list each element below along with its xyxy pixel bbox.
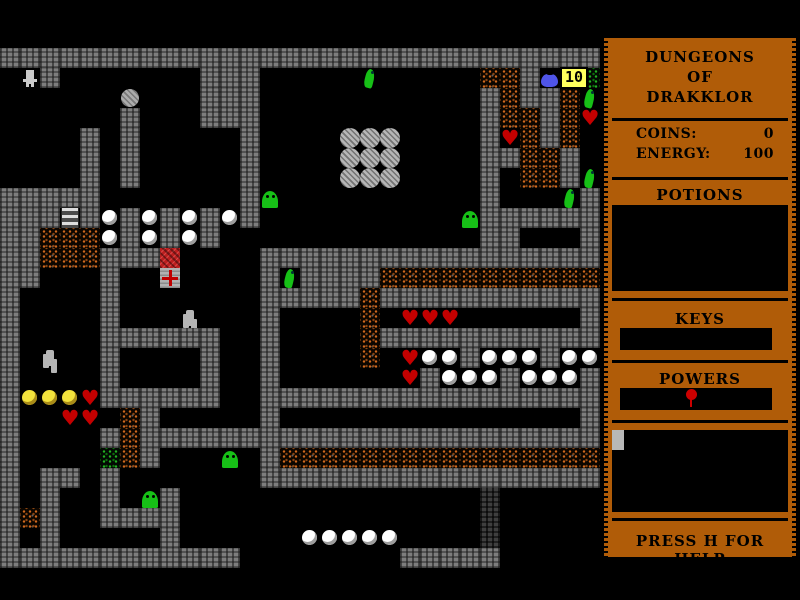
wall-tile [380, 428, 400, 448]
wall-tile [200, 48, 220, 68]
wall-tile [460, 388, 480, 408]
wall-tile [100, 248, 120, 268]
stone-orb [360, 128, 380, 148]
wall-tile [420, 288, 440, 308]
gold-ball-item [40, 388, 60, 408]
wall-tile [560, 48, 580, 68]
dirt-tile [520, 148, 540, 168]
wall-tile [380, 48, 400, 68]
wall-tile [0, 248, 20, 268]
wall-tile [100, 428, 120, 448]
wall-tile [300, 268, 320, 288]
pearl-item [560, 368, 580, 388]
wall-tile [400, 328, 420, 348]
wall-tile [380, 388, 400, 408]
wall-tile [40, 548, 60, 568]
wall-tile [140, 248, 160, 268]
red-block [160, 248, 180, 268]
wall-tile [440, 468, 460, 488]
wall-tile [220, 108, 240, 128]
wall-tile [360, 428, 380, 448]
wall-tile [40, 488, 60, 508]
heart-item [80, 408, 100, 428]
wall-tile [260, 428, 280, 448]
wall-tile [340, 388, 360, 408]
wall-tile [560, 468, 580, 488]
dark-wall-tile [480, 508, 500, 528]
wall-tile [540, 288, 560, 308]
dirt-tile [120, 448, 140, 468]
wall-tile [60, 468, 80, 488]
wall-tile [280, 48, 300, 68]
wall-tile [140, 508, 160, 528]
wall-tile [500, 148, 520, 168]
wall-tile [420, 368, 440, 388]
wall-tile [500, 288, 520, 308]
wall-tile [500, 388, 520, 408]
divider [612, 420, 788, 423]
arrows-tile [160, 268, 180, 288]
wall-tile [340, 468, 360, 488]
wall-tile [20, 48, 40, 68]
wall-tile [520, 468, 540, 488]
wall-tile [580, 428, 600, 448]
wall-tile [160, 388, 180, 408]
help-text: PRESS H FOR HELP [608, 532, 792, 568]
wall-tile [520, 88, 540, 108]
wall-tile [240, 48, 260, 68]
dirt-tile [60, 248, 80, 268]
wall-tile [20, 268, 40, 288]
wall-tile [160, 488, 180, 508]
wall-tile [260, 468, 280, 488]
wall-tile [260, 328, 280, 348]
wall-tile [580, 468, 600, 488]
wall-tile [380, 248, 400, 268]
wall-tile [0, 348, 20, 368]
coins-row: COINS: 0 [636, 126, 774, 142]
wall-tile [240, 188, 260, 208]
wall-tile [240, 108, 260, 128]
dirt-tile [520, 448, 540, 468]
wall-tile [300, 288, 320, 308]
wall-tile [500, 208, 520, 228]
wall-tile [80, 48, 100, 68]
pearl-item [300, 528, 320, 548]
wall-tile [340, 268, 360, 288]
wall-tile [260, 368, 280, 388]
dirt-tile [580, 268, 600, 288]
wall-tile [440, 328, 460, 348]
wall-tile [440, 548, 460, 568]
dirt-tile [560, 448, 580, 468]
dirt-tile [460, 268, 480, 288]
wall-tile [480, 148, 500, 168]
wall-tile [100, 308, 120, 328]
wall-tile [100, 368, 120, 388]
dirt-tile [360, 328, 380, 348]
wall-tile [100, 348, 120, 368]
pearl-item [480, 348, 500, 368]
ammo-counter: 10 [560, 67, 588, 89]
divider [612, 177, 788, 180]
divider [612, 118, 788, 121]
potions-heading: POTIONS [608, 186, 792, 204]
pearl-item [180, 208, 200, 228]
wall-tile [540, 328, 560, 348]
dark-wall-tile [480, 488, 500, 508]
dungeon-map[interactable]: 10 [0, 48, 600, 568]
wall-tile [540, 388, 560, 408]
wall-tile [200, 548, 220, 568]
wall-tile [500, 328, 520, 348]
wall-tile [80, 548, 100, 568]
wall-tile [580, 308, 600, 328]
keys-box [620, 328, 772, 350]
wall-tile [320, 248, 340, 268]
potion-jug [540, 68, 560, 88]
wall-tile [20, 228, 40, 248]
wall-tile [260, 388, 280, 408]
dirt-tile [520, 108, 540, 128]
wall-tile [560, 388, 580, 408]
dirt-tile [80, 228, 100, 248]
wall-tile [300, 48, 320, 68]
pearl-item [440, 368, 460, 388]
wall-tile [240, 88, 260, 108]
wall-tile [0, 408, 20, 428]
snake-monster [580, 168, 600, 188]
wall-tile [540, 108, 560, 128]
wall-tile [240, 128, 260, 148]
divider [612, 298, 788, 301]
wall-tile [280, 288, 300, 308]
pearl-item [220, 208, 240, 228]
wall-tile [120, 128, 140, 148]
wall-tile [500, 228, 520, 248]
wall-tile [560, 288, 580, 308]
wall-tile [40, 48, 60, 68]
wall-tile [100, 388, 120, 408]
wall-tile [540, 48, 560, 68]
wall-tile [240, 68, 260, 88]
wall-tile [400, 388, 420, 408]
wall-tile [440, 48, 460, 68]
wall-tile [0, 268, 20, 288]
wall-tile [0, 388, 20, 408]
wall-tile [480, 288, 500, 308]
wall-tile [420, 428, 440, 448]
wall-tile [200, 88, 220, 108]
wall-tile [20, 188, 40, 208]
pearl-item [100, 208, 120, 228]
slime-monster [220, 448, 240, 468]
wall-tile [480, 128, 500, 148]
wall-tile [220, 68, 240, 88]
wall-tile [440, 388, 460, 408]
wall-tile [480, 428, 500, 448]
pearl-item [520, 348, 540, 368]
wall-tile [280, 248, 300, 268]
slime-monster [140, 488, 160, 508]
dirt-tile [560, 88, 580, 108]
wall-tile [460, 468, 480, 488]
wall-tile [80, 188, 100, 208]
wall-tile [560, 168, 580, 188]
stone-orb [360, 148, 380, 168]
wall-tile [500, 248, 520, 268]
wall-tile [160, 228, 180, 248]
wall-tile [0, 288, 20, 308]
wall-tile [400, 548, 420, 568]
heart-item [440, 308, 460, 328]
dirt-tile [400, 448, 420, 468]
wall-tile [440, 248, 460, 268]
wall-tile [480, 88, 500, 108]
wall-tile [220, 548, 240, 568]
wall-tile [160, 208, 180, 228]
wall-tile [0, 508, 20, 528]
wall-tile [560, 208, 580, 228]
wall-tile [120, 328, 140, 348]
wall-tile [560, 328, 580, 348]
wall-tile [100, 288, 120, 308]
wall-tile [140, 548, 160, 568]
wall-tile [320, 388, 340, 408]
wall-tile [460, 548, 480, 568]
dirt-tile [500, 448, 520, 468]
wall-tile [500, 468, 520, 488]
wall-tile [300, 468, 320, 488]
wall-tile [200, 428, 220, 448]
wall-tile [460, 248, 480, 268]
pearl-item [140, 208, 160, 228]
status-panel: DUNGEONS OF DRAKKLOR COINS: 0 ENERGY: 10… [608, 38, 792, 557]
wall-tile [0, 368, 20, 388]
wall-tile [140, 408, 160, 428]
power-pin-icon [686, 389, 697, 400]
wall-tile [60, 188, 80, 208]
game-screen: 10 DUNGEONS OF DRAKKLOR COINS: 0 ENERGY:… [0, 0, 800, 600]
dirt-tile [440, 448, 460, 468]
wall-tile [60, 548, 80, 568]
wall-tile [480, 168, 500, 188]
wall-tile [180, 48, 200, 68]
wall-tile [140, 448, 160, 468]
wall-tile [580, 248, 600, 268]
wall-tile [200, 328, 220, 348]
stone-orb [380, 168, 400, 188]
wall-tile [480, 188, 500, 208]
wall-tile [280, 428, 300, 448]
wall-tile [200, 368, 220, 388]
dirt-tile [560, 108, 580, 128]
wall-tile [380, 468, 400, 488]
wall-tile [20, 248, 40, 268]
green-dirt-tile [100, 448, 120, 468]
dirt-tile [420, 448, 440, 468]
dirt-tile [520, 168, 540, 188]
coins-value: 0 [764, 126, 774, 142]
wall-tile [500, 428, 520, 448]
wall-tile [460, 348, 480, 368]
wall-tile [540, 128, 560, 148]
wall-tile [80, 208, 100, 228]
wall-tile [220, 48, 240, 68]
wall-tile [340, 288, 360, 308]
wall-tile [140, 388, 160, 408]
dirt-tile [360, 308, 380, 328]
wall-tile [500, 368, 520, 388]
wall-tile [440, 428, 460, 448]
pearl-item [500, 348, 520, 368]
wall-tile [560, 428, 580, 448]
wall-tile [120, 208, 140, 228]
wall-tile [40, 508, 60, 528]
pearl-item [560, 348, 580, 368]
wall-tile [380, 328, 400, 348]
dirt-tile [40, 248, 60, 268]
wall-tile [420, 48, 440, 68]
wall-tile [180, 548, 200, 568]
wall-tile [540, 348, 560, 368]
dirt-tile [360, 288, 380, 308]
wall-tile [300, 388, 320, 408]
wall-tile [0, 188, 20, 208]
potions-box [612, 205, 788, 291]
dirt-tile [400, 268, 420, 288]
heart-item [400, 308, 420, 328]
dirt-tile [540, 168, 560, 188]
dirt-tile [20, 508, 40, 528]
snake-monster [560, 188, 580, 208]
wall-tile [300, 428, 320, 448]
wall-tile [580, 388, 600, 408]
wall-tile [0, 228, 20, 248]
wall-tile [120, 228, 140, 248]
wall-tile [340, 48, 360, 68]
dirt-tile [60, 228, 80, 248]
wall-tile [180, 328, 200, 348]
wall-tile [40, 528, 60, 548]
wall-tile [560, 148, 580, 168]
heart-item [580, 108, 600, 128]
wall-tile [480, 468, 500, 488]
pearl-item [320, 528, 340, 548]
pearl-item [440, 348, 460, 368]
wall-tile [420, 468, 440, 488]
wall-tile [140, 328, 160, 348]
wall-tile [260, 308, 280, 328]
wall-tile [420, 248, 440, 268]
wall-tile [160, 328, 180, 348]
wall-tile [120, 148, 140, 168]
wall-tile [260, 348, 280, 368]
wall-tile [580, 408, 600, 428]
robot-monster [40, 348, 60, 368]
dirt-tile [500, 88, 520, 108]
wall-tile [0, 48, 20, 68]
wall-tile [580, 48, 600, 68]
wall-tile [400, 288, 420, 308]
wall-tile [340, 248, 360, 268]
wall-tile [120, 508, 140, 528]
coins-label: COINS: [636, 126, 697, 142]
wall-tile [100, 548, 120, 568]
heart-item [500, 128, 520, 148]
dirt-tile [520, 128, 540, 148]
wall-tile [540, 88, 560, 108]
wall-tile [0, 548, 20, 568]
wall-tile [380, 288, 400, 308]
wall-tile [360, 268, 380, 288]
dirt-tile [380, 448, 400, 468]
wall-tile [160, 428, 180, 448]
wall-tile [200, 208, 220, 228]
robot-monster [180, 308, 200, 328]
wall-tile [520, 328, 540, 348]
wall-tile [480, 388, 500, 408]
dirt-tile [420, 268, 440, 288]
wall-tile [240, 148, 260, 168]
wall-tile [400, 248, 420, 268]
wall-tile [260, 288, 280, 308]
dirt-tile [360, 448, 380, 468]
wall-tile [580, 228, 600, 248]
wall-tile [580, 368, 600, 388]
energy-label: ENERGY: [636, 146, 711, 162]
wall-tile [0, 328, 20, 348]
wall-tile [400, 468, 420, 488]
wall-tile [480, 328, 500, 348]
wall-tile [520, 388, 540, 408]
wall-tile [420, 388, 440, 408]
dirt-tile [120, 408, 140, 428]
game-title-line1: DUNGEONS [608, 48, 792, 66]
wall-tile [240, 428, 260, 448]
wall-tile [0, 208, 20, 228]
dirt-tile [480, 448, 500, 468]
wall-tile [0, 308, 20, 328]
powers-heading: POWERS [608, 370, 792, 388]
wall-tile [80, 128, 100, 148]
pearl-item [180, 228, 200, 248]
wall-tile [160, 528, 180, 548]
wall-tile [20, 548, 40, 568]
dirt-tile [560, 128, 580, 148]
wall-tile [320, 288, 340, 308]
wall-tile [320, 468, 340, 488]
pearl-item [100, 228, 120, 248]
wall-tile [520, 248, 540, 268]
dirt-tile [280, 448, 300, 468]
wall-tile [480, 108, 500, 128]
powers-box [620, 388, 772, 410]
ladder [60, 208, 80, 228]
wall-tile [140, 428, 160, 448]
wall-tile [120, 168, 140, 188]
pearl-item [580, 348, 600, 368]
energy-row: ENERGY: 100 [636, 146, 774, 162]
wall-tile [360, 248, 380, 268]
divider [612, 518, 788, 521]
wall-tile [220, 428, 240, 448]
dirt-tile [580, 448, 600, 468]
snake-monster [280, 268, 300, 288]
wall-tile [0, 448, 20, 468]
snake-monster [580, 88, 600, 108]
wall-tile [500, 48, 520, 68]
